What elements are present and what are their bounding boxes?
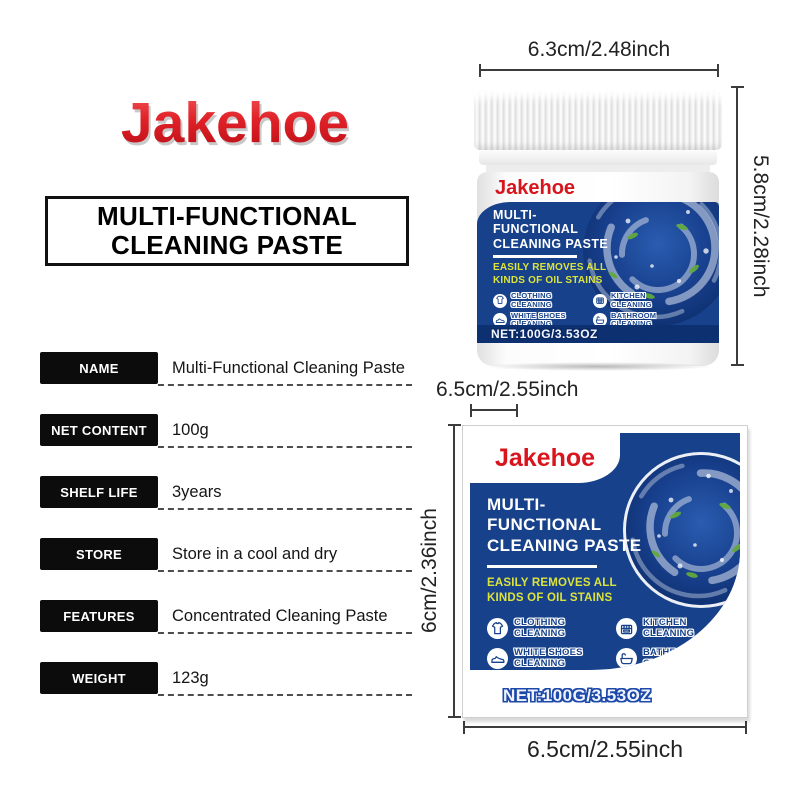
feature-kitchen: KITCHEN CLEANING xyxy=(593,292,689,309)
spec-value-shelf-life: 3years xyxy=(158,476,412,510)
table-row: WEIGHT 123g xyxy=(40,662,412,694)
spec-label-shelf-life: SHELF LIFE xyxy=(40,476,158,508)
product-label-panel: Jakehoe MULTI- FUNCTIONAL CLEANING PASTE… xyxy=(462,425,748,718)
jar-brand-text: Jakehoe xyxy=(495,177,575,200)
jar-body: Jakehoe xyxy=(477,172,719,366)
label-title-line1: MULTI- xyxy=(493,208,689,222)
table-row: STORE Store in a cool and dry xyxy=(40,538,412,570)
spec-label-store: STORE xyxy=(40,538,158,570)
jar-label: MULTI- FUNCTIONAL CLEANING PASTE EASILY … xyxy=(477,202,719,343)
feature-kitchen: KITCHEN CLEANING xyxy=(616,618,737,639)
box-height-dimension-line xyxy=(448,424,461,718)
label-subtitle-line2: KINDS OF OIL STAINS xyxy=(493,275,689,288)
box-width-bottom-dimension: 6.5cm/2.55inch xyxy=(463,736,747,763)
spec-label-weight: WEIGHT xyxy=(40,662,158,694)
feature-label: CLOTHING CLEANING xyxy=(511,292,552,309)
label-title-line2: FUNCTIONAL xyxy=(493,222,689,236)
box-width-top-dimension-line xyxy=(470,404,518,417)
jar-net-band: NET:100G/3.53OZ xyxy=(477,325,719,343)
label-underline xyxy=(487,565,597,568)
tshirt-icon xyxy=(493,294,507,308)
feature-clothing: CLOTHING CLEANING xyxy=(493,292,589,309)
spec-label-name: NAME xyxy=(40,352,158,384)
bathtub-icon xyxy=(616,648,637,669)
label-title-line2: FUNCTIONAL xyxy=(487,515,737,535)
panel-label-texts: MULTI- FUNCTIONAL CLEANING PASTE EASILY … xyxy=(487,495,737,670)
spec-value-weight: 123g xyxy=(158,662,412,696)
jar-height-dimension-line xyxy=(731,86,744,366)
label-subtitle-line2: KINDS OF OIL STAINS xyxy=(487,591,737,606)
spec-value-net-content: 100g xyxy=(158,414,412,448)
jar-height-dimension: 5.8cm/2.28inch xyxy=(748,86,772,366)
label-title-line1: MULTI- xyxy=(487,495,737,515)
product-jar: Jakehoe xyxy=(474,90,722,368)
feature-label: KITCHEN CLEANING xyxy=(611,292,652,309)
feature-grid: CLOTHING CLEANING KITCHEN CLEANING xyxy=(487,618,737,670)
panel-brand-corner: Jakehoe xyxy=(470,433,620,483)
product-title-line1: MULTI-FUNCTIONAL xyxy=(97,202,357,231)
spec-label-features: FEATURES xyxy=(40,600,158,632)
box-width-bottom-dimension-line xyxy=(463,721,747,734)
table-row: NAME Multi-Functional Cleaning Paste xyxy=(40,352,412,384)
spec-value-name: Multi-Functional Cleaning Paste xyxy=(158,352,412,386)
panel-brand-text: Jakehoe xyxy=(495,444,595,473)
label-subtitle-line1: EASILY REMOVES ALL xyxy=(487,576,737,591)
feature-label: KITCHEN CLEANING xyxy=(643,618,694,639)
spec-table: NAME Multi-Functional Cleaning Paste NET… xyxy=(40,352,412,724)
net-weight-text: NET:100G/3.53OZ xyxy=(491,327,598,341)
product-spec-sheet: Jakehoe MULTI-FUNCTIONAL CLEANING PASTE … xyxy=(0,0,800,800)
box-width-top-dimension: 6.5cm/2.55inch xyxy=(436,378,578,402)
jar-shadow xyxy=(482,362,714,371)
feature-label: CLOTHING CLEANING xyxy=(514,618,565,639)
label-title-line3: CLEANING PASTE xyxy=(493,237,689,251)
feature-white-shoes: WHITE SHOES CLEANING xyxy=(487,648,608,669)
feature-label: WHITE SHOES CLEANING xyxy=(514,648,583,669)
label-title-line3: CLEANING PASTE xyxy=(487,536,737,556)
net-weight-text: NET:100G/3.53OZ xyxy=(503,686,651,705)
feature-label: BATHROOM CLEANING xyxy=(643,648,700,669)
stove-icon xyxy=(616,618,637,639)
sneaker-icon xyxy=(487,648,508,669)
label-underline xyxy=(493,255,577,258)
table-row: FEATURES Concentrated Cleaning Paste xyxy=(40,600,412,632)
jar-label-texts: MULTI- FUNCTIONAL CLEANING PASTE EASILY … xyxy=(493,208,689,329)
panel-blue-area: Jakehoe MULTI- FUNCTIONAL CLEANING PASTE… xyxy=(470,433,740,670)
brand-logo: Jakehoe xyxy=(95,90,375,156)
label-subtitle-line1: EASILY REMOVES ALL xyxy=(493,262,689,275)
jar-width-dimension-line xyxy=(479,64,719,77)
box-height-dimension: 6cm/2.36inch xyxy=(418,424,442,718)
feature-bathroom: BATHROOM CLEANING xyxy=(616,648,737,669)
feature-clothing: CLOTHING CLEANING xyxy=(487,618,608,639)
product-title-box: MULTI-FUNCTIONAL CLEANING PASTE xyxy=(45,196,409,266)
table-row: NET CONTENT 100g xyxy=(40,414,412,446)
jar-width-dimension: 6.3cm/2.48inch xyxy=(479,38,719,62)
spec-label-net-content: NET CONTENT xyxy=(40,414,158,446)
table-row: SHELF LIFE 3years xyxy=(40,476,412,508)
product-title-line2: CLEANING PASTE xyxy=(111,231,343,260)
feature-grid: CLOTHING CLEANING KITCHEN CLEANING xyxy=(493,292,689,329)
stove-icon xyxy=(593,294,607,308)
spec-value-store: Store in a cool and dry xyxy=(158,538,412,572)
jar-lid xyxy=(474,90,722,150)
jar-lid-rim xyxy=(479,150,717,165)
panel-net-weight: NET:100G/3.53OZ xyxy=(503,686,651,706)
spec-value-features: Concentrated Cleaning Paste xyxy=(158,600,412,634)
tshirt-icon xyxy=(487,618,508,639)
